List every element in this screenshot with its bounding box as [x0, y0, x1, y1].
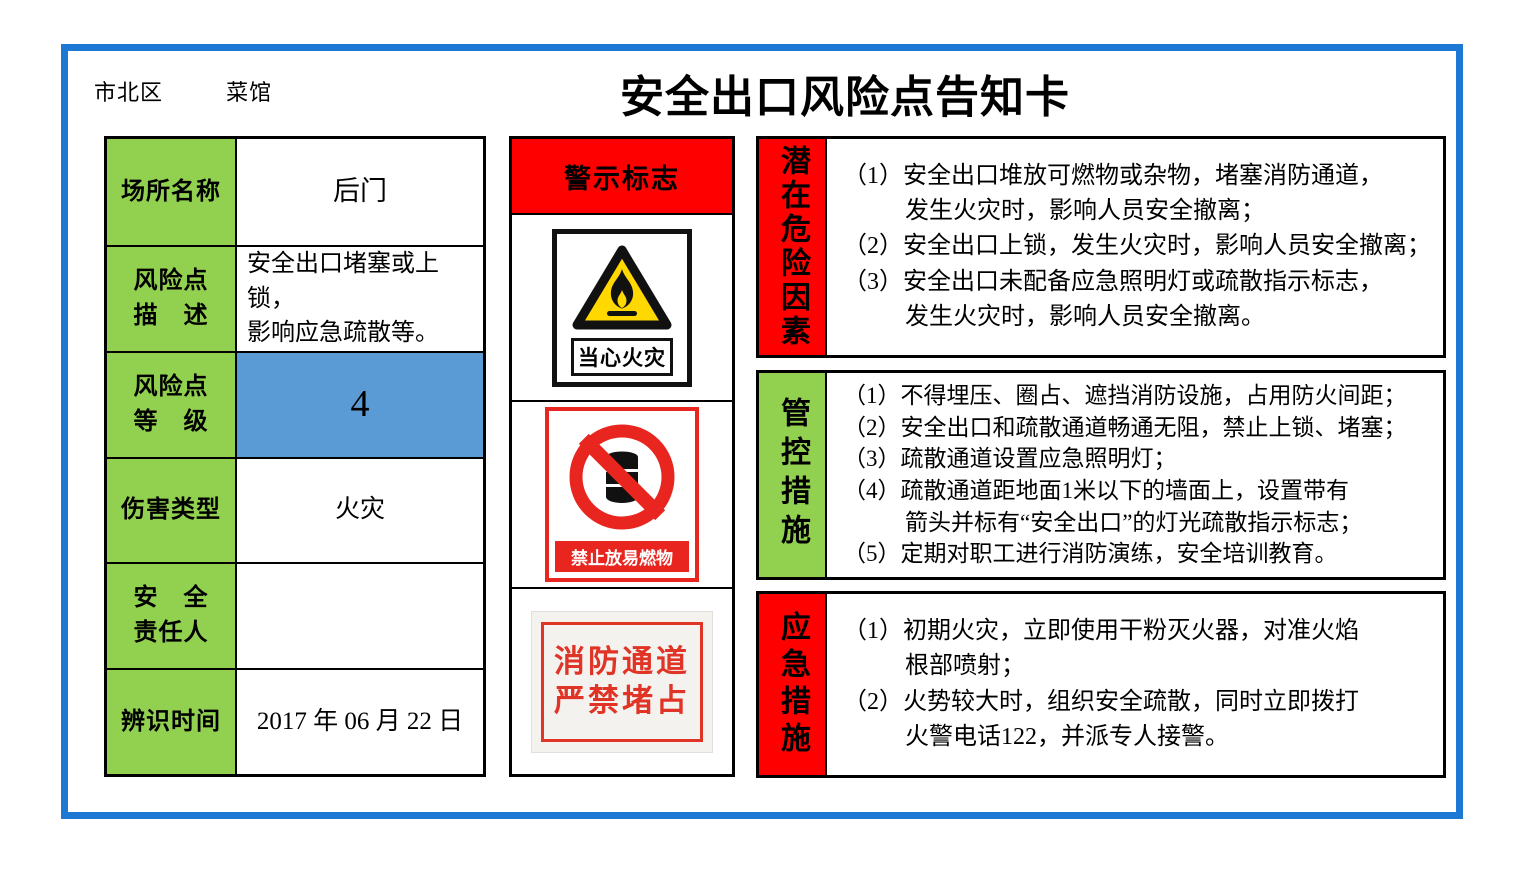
district-label: 市北区	[94, 80, 163, 105]
section-content: （1）安全出口堆放可燃物或杂物，堵塞消防通道， 发生火灾时，影响人员安全撤离； …	[827, 139, 1443, 355]
row-label: 场所名称	[107, 139, 237, 245]
row-label: 风险点 描 述	[107, 247, 237, 351]
notification-card: 市北区 菜馆 安全出口风险点告知卡 场所名称 后门 风险点 描 述 安全出口堵塞	[61, 44, 1463, 819]
row-value: 火灾	[237, 459, 483, 563]
row-label: 伤害类型	[107, 459, 237, 563]
text-line: （2）安全出口和疏散通道畅通无阻，禁止上锁、堵塞；	[843, 412, 1433, 444]
text-line: 发生火灾时，影响人员安全撤离。	[843, 300, 1433, 335]
sign-cell-no-flammables: 禁止放易燃物	[512, 400, 732, 587]
label-line: 责任人	[134, 616, 209, 651]
section-control-measures: 管控措施 （1）不得埋压、圈占、遮挡消防设施，占用防火间距； （2）安全出口和疏…	[756, 370, 1446, 580]
label-line: 安 全	[134, 581, 209, 616]
row-value: 安全出口堵塞或上锁， 影响应急疏散等。	[237, 247, 483, 351]
text-line: （3）安全出口未配备应急照明灯或疏散指示标志，	[843, 265, 1433, 300]
row-label: 风险点 等 级	[107, 353, 237, 457]
page-title: 安全出口风险点告知卡	[620, 61, 1070, 125]
text-line: （3）疏散通道设置应急照明灯；	[843, 443, 1433, 475]
table-row-place: 场所名称 后门	[107, 139, 483, 245]
table-row-risk-desc: 风险点 描 述 安全出口堵塞或上锁， 影响应急疏散等。	[107, 245, 483, 351]
identify-date-value: 2017 年 06 月 22 日	[237, 670, 483, 774]
fire-warning-triangle-icon	[572, 243, 672, 331]
label-line: 场所名称	[121, 175, 221, 210]
section-label-emergency-measures: 应急措施	[759, 594, 827, 775]
row-value-empty	[237, 564, 483, 668]
warning-signs-column: 警示标志 当心火灾	[509, 136, 735, 777]
section-content: （1）初期火灾，立即使用干粉灭火器，对准火焰 根部喷射； （2）火势较大时，组织…	[827, 594, 1443, 775]
no-flammables-label: 禁止放易燃物	[555, 541, 689, 572]
text-line: （2）安全出口上锁，发生火灾时，影响人员安全撤离；	[843, 229, 1433, 264]
row-label: 辨识时间	[107, 670, 237, 774]
value-line: 安全出口堵塞或上锁，	[247, 247, 483, 317]
value-line: 2017 年 06 月 22 日	[257, 704, 463, 740]
label-line: 伤害类型	[121, 493, 221, 528]
table-row-harm-type: 伤害类型 火灾	[107, 457, 483, 563]
label-line: 风险点	[134, 264, 209, 299]
text-line: （1）不得埋压、圈占、遮挡消防设施，占用防火间距；	[843, 380, 1433, 412]
no-flammables-prohibition-icon	[566, 421, 678, 533]
row-value: 后门	[237, 139, 483, 245]
text-line: 火警电话122，并派专人接警。	[843, 720, 1433, 755]
fire-lane-sign-inner: 消防通道 严禁堵占	[541, 622, 703, 742]
fire-warning-label: 当心火灾	[571, 338, 673, 376]
fire-lane-sign: 消防通道 严禁堵占	[532, 612, 712, 752]
no-flammables-sign: 禁止放易燃物	[545, 407, 699, 582]
table-row-risk-level: 风险点 等 级 4	[107, 351, 483, 457]
venue-label: 菜馆	[226, 80, 272, 105]
org-line: 市北区 菜馆	[94, 75, 272, 107]
risk-level-number: 4	[351, 377, 370, 432]
fire-lane-line: 严禁堵占	[554, 682, 690, 721]
section-potential-hazards: 潜在危险因素 （1）安全出口堆放可燃物或杂物，堵塞消防通道， 发生火灾时，影响人…	[756, 136, 1446, 358]
row-label: 安 全 责任人	[107, 564, 237, 668]
info-table: 场所名称 后门 风险点 描 述 安全出口堵塞或上锁， 影响应急疏散等。 风险点	[104, 136, 486, 777]
text-line: （1）初期火灾，立即使用干粉灭火器，对准火焰	[843, 614, 1433, 649]
value-line: 火灾	[335, 492, 385, 528]
sign-cell-fire-warning: 当心火灾	[512, 215, 732, 400]
table-row-safety-officer: 安 全 责任人	[107, 562, 483, 668]
value-line: 后门	[333, 172, 387, 211]
section-content: （1）不得埋压、圈占、遮挡消防设施，占用防火间距； （2）安全出口和疏散通道畅通…	[827, 373, 1443, 577]
sign-cell-fire-lane: 消防通道 严禁堵占	[512, 587, 732, 774]
risk-level-value: 4	[237, 353, 483, 457]
label-line: 描 述	[134, 299, 209, 334]
text-line: 发生火灾时，影响人员安全撤离；	[843, 194, 1433, 229]
text-line: （2）火势较大时，组织安全疏散，同时立即拨打	[843, 685, 1433, 720]
value-line: 影响应急疏散等。	[247, 316, 439, 351]
signs-header: 警示标志	[512, 139, 732, 215]
section-label-potential-hazards: 潜在危险因素	[759, 139, 827, 355]
label-line: 辨识时间	[121, 705, 221, 740]
text-line: （4）疏散通道距地面1米以下的墙面上，设置带有	[843, 475, 1433, 507]
text-line: （5）定期对职工进行消防演练，安全培训教育。	[843, 538, 1433, 570]
section-emergency-measures: 应急措施 （1）初期火灾，立即使用干粉灭火器，对准火焰 根部喷射； （2）火势较…	[756, 591, 1446, 778]
label-line: 等 级	[134, 405, 209, 440]
text-line: 根部喷射；	[843, 649, 1433, 684]
table-row-identify-date: 辨识时间 2017 年 06 月 22 日	[107, 668, 483, 774]
section-label-control-measures: 管控措施	[759, 373, 827, 577]
text-line: （1）安全出口堆放可燃物或杂物，堵塞消防通道，	[843, 159, 1433, 194]
label-line: 风险点	[134, 370, 209, 405]
text-line: 箭头并标有“安全出口”的灯光疏散指示标志；	[843, 507, 1433, 539]
page: 市北区 菜馆 安全出口风险点告知卡 场所名称 后门 风险点 描 述 安全出口堵塞	[0, 0, 1524, 869]
fire-warning-sign: 当心火灾	[552, 229, 692, 387]
fire-lane-line: 消防通道	[554, 643, 690, 682]
